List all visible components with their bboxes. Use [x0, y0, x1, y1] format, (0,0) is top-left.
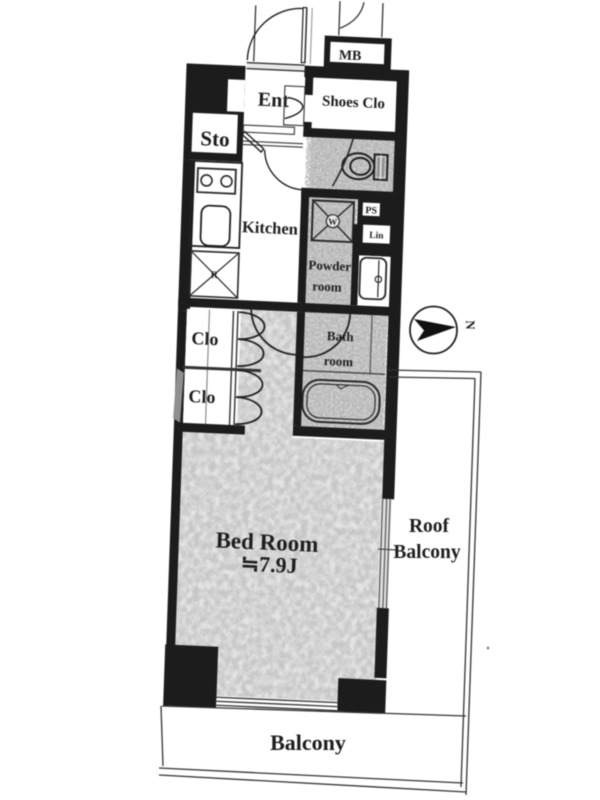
svg-text:≒7.9J: ≒7.9J	[240, 551, 298, 579]
svg-text:room: room	[323, 353, 353, 369]
svg-text:MB: MB	[339, 48, 362, 64]
svg-text:Bath: Bath	[327, 328, 355, 344]
svg-text:Sto: Sto	[200, 126, 230, 151]
svg-text:Powder: Powder	[308, 257, 351, 274]
svg-text:Balcony: Balcony	[270, 730, 346, 755]
svg-text:Shoes Clo: Shoes Clo	[322, 94, 385, 113]
svg-text:Kitchen: Kitchen	[242, 217, 299, 238]
svg-text:Lin: Lin	[369, 231, 384, 242]
svg-text:Roof: Roof	[409, 516, 450, 537]
svg-text:Balcony: Balcony	[393, 542, 460, 563]
svg-text:Clo: Clo	[188, 386, 216, 407]
svg-text:N: N	[463, 320, 478, 330]
svg-text:room: room	[312, 278, 342, 294]
svg-text:W: W	[328, 216, 337, 226]
svg-text:Clo: Clo	[191, 328, 219, 349]
svg-text:PS: PS	[365, 205, 377, 217]
svg-text:R: R	[210, 270, 218, 281]
